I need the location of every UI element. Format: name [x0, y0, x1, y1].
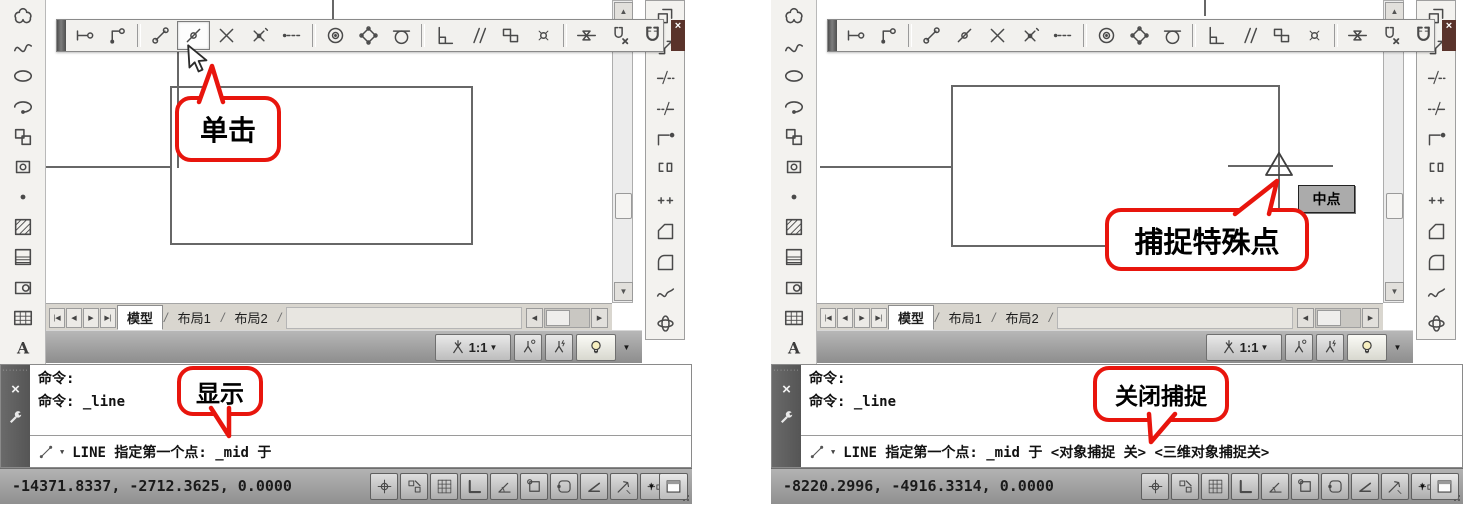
- cad-window-right: 中点 × ▲ ▼ |◀ ◀ ▶ ▶| 模型 / 布局1 / 布局2 / ◀ ▶ …: [771, 0, 1463, 505]
- rectangle-left: [170, 86, 172, 245]
- snap-to-nearest-button[interactable]: [1341, 21, 1374, 50]
- lengthen-icon: [655, 129, 676, 150]
- snap-to-endpoint-icon: [150, 25, 171, 46]
- toolbar-close-button[interactable]: ×: [671, 20, 685, 51]
- snap-to-apparent-intersection-icon: [249, 25, 270, 46]
- multiline-text-button[interactable]: [779, 334, 809, 362]
- join-button[interactable]: [1422, 156, 1450, 183]
- snap-to-node-icon: [1304, 25, 1325, 46]
- snap-to-center-button[interactable]: [319, 21, 352, 50]
- annotation-scale-button[interactable]: 1:1 ▼: [435, 334, 511, 361]
- line-tool-icon: [38, 444, 54, 460]
- first-tab-button[interactable]: |◀: [49, 308, 65, 328]
- callout-close-snap-label: 关闭捕捉: [1115, 377, 1207, 411]
- fillet-button[interactable]: [651, 249, 679, 276]
- callout-close-snap-tail: [1125, 412, 1185, 446]
- blend-curves-button[interactable]: [651, 279, 679, 306]
- snap-to-quadrant-button[interactable]: [352, 21, 385, 50]
- table-icon: [12, 307, 34, 329]
- snap-to-insertion-icon: [500, 25, 521, 46]
- temporary-track-point-icon: [74, 25, 95, 46]
- point-button[interactable]: [779, 183, 809, 211]
- snap-to-tangent-button[interactable]: [1156, 21, 1189, 50]
- object-snap-icon: [525, 477, 544, 496]
- callout-click-label: 单击: [200, 109, 256, 149]
- command-prompt-text: LINE 指定第一个点: _mid 于: [72, 442, 271, 462]
- resize-grip[interactable]: [679, 491, 689, 501]
- hscroll-left-button[interactable]: ◀: [526, 308, 543, 328]
- recent-commands-caret-icon[interactable]: ▼: [831, 448, 835, 456]
- toolbar-separator: [563, 24, 567, 47]
- callout-click: 单击: [175, 96, 281, 162]
- annotation-scale-icon: [449, 338, 467, 356]
- free-orbit-button[interactable]: [651, 310, 679, 337]
- region-button[interactable]: [779, 274, 809, 302]
- object-snap-tracking-button[interactable]: [1321, 473, 1349, 500]
- status-bar: -14371.8337, -2712.3625, 0.0000 ▼: [0, 468, 692, 504]
- dynamic-input-icon: [615, 477, 634, 496]
- point-button[interactable]: [8, 183, 38, 211]
- snap-from-icon: [107, 25, 128, 46]
- snap-to-perpendicular-button[interactable]: [428, 21, 461, 50]
- multiline-text-icon: [12, 337, 34, 359]
- snap-to-extension-icon: [1053, 25, 1074, 46]
- snap-to-apparent-intersection-icon: [1020, 25, 1041, 46]
- break-at-point-icon: [1426, 67, 1447, 88]
- status-bar: -8220.2996, -4916.3314, 0.0000 ▼: [771, 468, 1463, 504]
- point-icon: [783, 186, 805, 208]
- horizontal-scrollbar[interactable]: [544, 308, 590, 328]
- command-grip[interactable]: ········: [773, 369, 800, 373]
- object-snap-button[interactable]: [520, 473, 548, 500]
- hatch-button[interactable]: [8, 213, 38, 241]
- break-icon: [1426, 98, 1447, 119]
- command-window-sidebar: ········ ×: [1, 365, 30, 467]
- lightbulb-icon: [587, 338, 605, 356]
- free-orbit-icon: [1426, 313, 1447, 334]
- region-button[interactable]: [8, 274, 38, 302]
- lengthen-button[interactable]: [651, 126, 679, 153]
- snap-to-extension-button[interactable]: [1047, 21, 1080, 50]
- hscroll-right-button[interactable]: ▶: [591, 308, 608, 328]
- annotation-visibility-icon: [1290, 338, 1308, 356]
- snap-from-icon: [878, 25, 899, 46]
- tab-strip-space: [286, 307, 522, 329]
- hscroll-right-button[interactable]: ▶: [1362, 308, 1379, 328]
- command-history[interactable]: 命令: 命令: _line ▼ LINE 指定第一个点: _mid 于: [30, 365, 691, 467]
- osnap-settings-icon: [1413, 25, 1434, 46]
- ortho-mode-button[interactable]: [1231, 473, 1259, 500]
- hatch-button[interactable]: [779, 213, 809, 241]
- annotation-menu-button[interactable]: ▼: [1390, 335, 1405, 360]
- gradient-button[interactable]: [8, 243, 38, 271]
- annotation-visibility-button[interactable]: [1285, 334, 1313, 361]
- hscroll-thumb[interactable]: [1317, 310, 1341, 326]
- snap-to-apparent-intersection-button[interactable]: [243, 21, 276, 50]
- dynamic-ucs-icon: [585, 477, 604, 496]
- snap-mode-icon: [405, 477, 424, 496]
- snap-to-insertion-icon: [1271, 25, 1292, 46]
- toolbar-drag-handle[interactable]: [57, 20, 66, 51]
- tab-layout1[interactable]: 布局1: [169, 306, 220, 329]
- snap-to-none-icon: [1380, 25, 1401, 46]
- snap-to-quadrant-icon: [358, 25, 379, 46]
- polar-tracking-icon: [495, 477, 514, 496]
- snap-mode-icon: [1176, 477, 1195, 496]
- annotation-visibility-icon: [519, 338, 537, 356]
- hscroll-left-button[interactable]: ◀: [1297, 308, 1314, 328]
- snap-from-button[interactable]: [872, 21, 905, 50]
- insert-block-button[interactable]: [779, 123, 809, 151]
- annotation-lightbulb-button[interactable]: [576, 334, 616, 361]
- snap-to-node-button[interactable]: [1298, 21, 1331, 50]
- annotation-visibility-button[interactable]: [514, 334, 542, 361]
- snap-to-perpendicular-icon: [434, 25, 455, 46]
- last-tab-button[interactable]: ▶|: [100, 308, 116, 328]
- midpoint-marker-icon: [1263, 150, 1295, 178]
- stretch-icon: [1426, 190, 1447, 211]
- region-icon: [783, 277, 805, 299]
- next-tab-button[interactable]: ▶: [83, 308, 99, 328]
- snap-to-intersection-icon: [987, 25, 1008, 46]
- tab-layout2[interactable]: 布局2: [226, 306, 277, 329]
- snap-to-nearest-icon: [576, 25, 597, 46]
- tab-model[interactable]: 模型: [117, 305, 163, 330]
- ellipse-button[interactable]: [779, 62, 809, 90]
- stretch-button[interactable]: [1422, 187, 1450, 214]
- line-stub: [332, 0, 334, 19]
- status-toggles: [370, 473, 668, 500]
- point-icon: [12, 186, 34, 208]
- blend-curves-icon: [655, 282, 676, 303]
- ellipse-icon: [783, 65, 805, 87]
- revision-cloud-button[interactable]: [8, 2, 38, 30]
- spline-button[interactable]: [779, 32, 809, 60]
- snap-to-tangent-button[interactable]: [385, 21, 418, 50]
- snap-to-endpoint-icon: [921, 25, 942, 46]
- toolbar-separator: [312, 24, 316, 47]
- fillet-button[interactable]: [1422, 249, 1450, 276]
- grid-display-icon: [1206, 477, 1225, 496]
- scroll-down-button[interactable]: ▼: [614, 282, 633, 301]
- break-at-point-icon: [655, 67, 676, 88]
- command-prompt[interactable]: ▼ LINE 指定第一个点: _mid 于: [30, 435, 691, 467]
- fillet-icon: [655, 252, 676, 273]
- toolbar-separator: [137, 24, 141, 47]
- callout-display: 显示: [177, 366, 263, 416]
- spline-button[interactable]: [8, 32, 38, 60]
- temporary-track-point-icon: [845, 25, 866, 46]
- snap-to-quadrant-button[interactable]: [1123, 21, 1156, 50]
- chamfer-icon: [655, 221, 676, 242]
- auto-annotation-scale-icon: [550, 338, 568, 356]
- snap-to-node-button[interactable]: [527, 21, 560, 50]
- dynamic-input-icon: [1386, 477, 1405, 496]
- revision-cloud-button[interactable]: [779, 2, 809, 30]
- annotation-lightbulb-button[interactable]: [1347, 334, 1387, 361]
- status-menu-caret[interactable]: ▼: [1416, 474, 1429, 499]
- spline-icon: [12, 35, 34, 57]
- callout-snap-special-label: 捕捉特殊点: [1134, 219, 1279, 261]
- snap-mode-button[interactable]: [1171, 473, 1199, 500]
- make-block-button[interactable]: [779, 153, 809, 181]
- next-tab-button[interactable]: ▶: [854, 308, 870, 328]
- elliptical-arc-button[interactable]: [779, 93, 809, 121]
- elliptical-arc-button[interactable]: [8, 93, 38, 121]
- infer-constraints-icon: [1146, 477, 1165, 496]
- insert-block-icon: [783, 126, 805, 148]
- region-icon: [12, 277, 34, 299]
- dynamic-ucs-icon: [1356, 477, 1375, 496]
- break-at-point-button[interactable]: [651, 64, 679, 91]
- snap-to-parallel-icon: [467, 25, 488, 46]
- rectangle-top: [951, 85, 1280, 87]
- break-button[interactable]: [651, 95, 679, 122]
- snap-to-extension-icon: [282, 25, 303, 46]
- annotation-status-strip: 1:1 ▼ ▼: [46, 330, 642, 363]
- command-tools-icon[interactable]: [778, 408, 796, 426]
- last-tab-button[interactable]: ▶|: [871, 308, 887, 328]
- polar-tracking-icon: [1266, 477, 1285, 496]
- osnap-settings-button[interactable]: [1407, 21, 1440, 50]
- gradient-button[interactable]: [779, 243, 809, 271]
- ortho-mode-button[interactable]: [460, 473, 488, 500]
- mouse-cursor-icon: [184, 44, 208, 78]
- command-tools-icon[interactable]: [7, 408, 25, 426]
- ortho-mode-icon: [1236, 477, 1255, 496]
- object-snap-tracking-button[interactable]: [550, 473, 578, 500]
- gradient-icon: [12, 246, 34, 268]
- toolbar-separator: [1083, 24, 1087, 47]
- stretch-icon: [655, 190, 676, 211]
- snap-to-endpoint-button[interactable]: [144, 21, 177, 50]
- command-prompt-text: LINE 指定第一个点: _mid 于 <对象捕捉 关> <三维对象捕捉关>: [843, 442, 1269, 462]
- dynamic-ucs-button[interactable]: [580, 473, 608, 500]
- dynamic-input-button[interactable]: [610, 473, 638, 500]
- lengthen-icon: [1426, 129, 1447, 150]
- insert-block-button[interactable]: [8, 123, 38, 151]
- chamfer-button[interactable]: [651, 218, 679, 245]
- cad-window-left: × ▲ ▼ |◀ ◀ ▶ ▶| 模型 / 布局1 / 布局2 / ◀ ▶ 1:1…: [0, 0, 692, 505]
- rectangle-left: [951, 85, 953, 247]
- snap-tooltip: 中点: [1298, 185, 1355, 213]
- osnap-settings-button[interactable]: [636, 21, 669, 50]
- blend-curves-button[interactable]: [1422, 279, 1450, 306]
- auto-annotation-scale-icon: [1321, 338, 1339, 356]
- snap-to-insertion-button[interactable]: [1265, 21, 1298, 50]
- command-close-button[interactable]: ×: [11, 381, 20, 398]
- snap-to-parallel-button[interactable]: [461, 21, 494, 50]
- make-block-icon: [12, 156, 34, 178]
- snap-to-parallel-button[interactable]: [1232, 21, 1265, 50]
- hatch-icon: [12, 216, 34, 238]
- annotation-menu-button[interactable]: ▼: [619, 335, 634, 360]
- snap-to-extension-button[interactable]: [276, 21, 309, 50]
- snap-to-apparent-intersection-button[interactable]: [1014, 21, 1047, 50]
- stretch-button[interactable]: [651, 187, 679, 214]
- snap-to-nearest-button[interactable]: [570, 21, 603, 50]
- join-button[interactable]: [651, 156, 679, 183]
- snap-to-none-button[interactable]: [1374, 21, 1407, 50]
- recent-commands-caret-icon[interactable]: ▼: [60, 448, 64, 456]
- coordinates-readout: -8220.2996, -4916.3314, 0.0000: [783, 477, 1054, 495]
- line-stub: [1204, 0, 1206, 16]
- coordinates-readout: -14371.8337, -2712.3625, 0.0000: [12, 477, 292, 495]
- snap-to-parallel-icon: [1238, 25, 1259, 46]
- tab-layout2[interactable]: 布局2: [997, 306, 1048, 329]
- tab-navigation: |◀ ◀ ▶ ▶|: [820, 308, 888, 328]
- toolbar-drag-handle[interactable]: [828, 20, 837, 51]
- hscroll-thumb[interactable]: [546, 310, 570, 326]
- annotation-scale-value: 1:1: [1240, 340, 1259, 355]
- infer-constraints-button[interactable]: [1141, 473, 1169, 500]
- prev-tab-button[interactable]: ◀: [66, 308, 82, 328]
- command-window-sidebar: ········ ×: [772, 365, 801, 467]
- callout-display-tail: [203, 406, 243, 442]
- horizontal-scrollbar[interactable]: [1315, 308, 1361, 328]
- revision-cloud-icon: [783, 5, 805, 27]
- tab-layout1[interactable]: 布局1: [940, 306, 991, 329]
- draw-toolbar: [771, 0, 817, 364]
- grid-display-button[interactable]: [1201, 473, 1229, 500]
- snap-to-intersection-button[interactable]: [981, 21, 1014, 50]
- make-block-button[interactable]: [8, 153, 38, 181]
- layout-tab-bar: |◀ ◀ ▶ ▶| 模型 / 布局1 / 布局2 / ◀ ▶: [46, 303, 612, 331]
- tab-navigation: |◀ ◀ ▶ ▶|: [49, 308, 117, 328]
- draw-toolbar: [0, 0, 46, 364]
- snap-to-nearest-icon: [1347, 25, 1368, 46]
- snap-to-perpendicular-icon: [1205, 25, 1226, 46]
- ortho-mode-icon: [465, 477, 484, 496]
- lengthen-button[interactable]: [1422, 126, 1450, 153]
- prev-tab-button[interactable]: ◀: [837, 308, 853, 328]
- spline-icon: [783, 35, 805, 57]
- object-snap-icon: [1296, 477, 1315, 496]
- toolbar-separator: [908, 24, 912, 47]
- blend-curves-icon: [1426, 282, 1447, 303]
- chamfer-button[interactable]: [1422, 218, 1450, 245]
- object-snap-tracking-icon: [555, 477, 574, 496]
- auto-annotation-scale-button[interactable]: [545, 334, 573, 361]
- snap-to-none-button[interactable]: [603, 21, 636, 50]
- temporary-track-point-button[interactable]: [839, 21, 872, 50]
- snap-to-insertion-button[interactable]: [494, 21, 527, 50]
- table-button[interactable]: [779, 304, 809, 332]
- multiline-text-icon: [783, 337, 805, 359]
- toolbar-close-button[interactable]: ×: [1442, 20, 1456, 51]
- resize-grip[interactable]: [1450, 491, 1460, 501]
- command-line: 命令: _line: [30, 388, 691, 411]
- table-icon: [783, 307, 805, 329]
- command-grip[interactable]: ········: [2, 369, 29, 373]
- snap-to-endpoint-button[interactable]: [915, 21, 948, 50]
- ellipse-button[interactable]: [8, 62, 38, 90]
- polar-tracking-button[interactable]: [1261, 473, 1289, 500]
- object-snap-toolbar: ×: [827, 19, 1435, 52]
- grid-display-button[interactable]: [430, 473, 458, 500]
- temporary-track-point-button[interactable]: [68, 21, 101, 50]
- hatch-icon: [783, 216, 805, 238]
- lightbulb-icon: [1358, 338, 1376, 356]
- close-icon: ×: [675, 20, 681, 33]
- caret-down-icon: ▼: [1260, 343, 1268, 352]
- snap-to-midpoint-icon: [954, 25, 975, 46]
- annotation-scale-value: 1:1: [469, 340, 488, 355]
- ellipse-icon: [12, 65, 34, 87]
- scroll-down-button[interactable]: ▼: [1385, 282, 1404, 301]
- free-orbit-button[interactable]: [1422, 310, 1450, 337]
- snap-to-node-icon: [533, 25, 554, 46]
- command-close-button[interactable]: ×: [782, 381, 791, 398]
- snap-to-none-icon: [609, 25, 630, 46]
- infer-constraints-button[interactable]: [370, 473, 398, 500]
- join-icon: [655, 159, 676, 180]
- snap-to-perpendicular-button[interactable]: [1199, 21, 1232, 50]
- grid-display-icon: [435, 477, 454, 496]
- callout-snap-special-tail: [1227, 176, 1297, 216]
- free-orbit-icon: [655, 313, 676, 334]
- scrollbar-thumb[interactable]: [615, 193, 632, 219]
- elliptical-arc-icon: [783, 96, 805, 118]
- auto-annotation-scale-button[interactable]: [1316, 334, 1344, 361]
- snap-to-intersection-icon: [216, 25, 237, 46]
- snap-to-center-button[interactable]: [1090, 21, 1123, 50]
- scrollbar-thumb[interactable]: [1386, 193, 1403, 219]
- callout-close-snap: 关闭捕捉: [1093, 366, 1229, 422]
- command-line: 命令:: [30, 365, 691, 388]
- snap-mode-button[interactable]: [400, 473, 428, 500]
- polar-tracking-button[interactable]: [490, 473, 518, 500]
- line-tool-icon: [809, 444, 825, 460]
- first-tab-button[interactable]: |◀: [820, 308, 836, 328]
- callout-snap-special-point: 捕捉特殊点: [1105, 208, 1309, 271]
- snap-to-midpoint-button[interactable]: [948, 21, 981, 50]
- layout-tab-bar: |◀ ◀ ▶ ▶| 模型 / 布局1 / 布局2 / ◀ ▶: [817, 303, 1383, 331]
- annotation-scale-button[interactable]: 1:1 ▼: [1206, 334, 1282, 361]
- toolbar-separator: [1334, 24, 1338, 47]
- make-block-icon: [783, 156, 805, 178]
- infer-constraints-icon: [375, 477, 394, 496]
- tab-strip-space: [1057, 307, 1293, 329]
- insert-block-icon: [12, 126, 34, 148]
- fillet-icon: [1426, 252, 1447, 273]
- osnap-settings-icon: [642, 25, 663, 46]
- tab-model[interactable]: 模型: [888, 305, 934, 330]
- multiline-text-button[interactable]: [8, 334, 38, 362]
- snap-to-quadrant-icon: [1129, 25, 1150, 46]
- snap-to-center-icon: [325, 25, 346, 46]
- toolbar-separator: [421, 24, 425, 47]
- gradient-icon: [783, 246, 805, 268]
- annotation-status-strip: 1:1 ▼ ▼: [817, 330, 1413, 363]
- status-menu-caret[interactable]: ▼: [645, 474, 658, 499]
- snap-to-center-icon: [1096, 25, 1117, 46]
- table-button[interactable]: [8, 304, 38, 332]
- object-snap-toolbar: ×: [56, 19, 664, 52]
- break-at-point-button[interactable]: [1422, 64, 1450, 91]
- dynamic-ucs-button[interactable]: [1351, 473, 1379, 500]
- snap-to-intersection-button[interactable]: [210, 21, 243, 50]
- break-button[interactable]: [1422, 95, 1450, 122]
- close-icon: ×: [1446, 20, 1452, 33]
- snap-from-button[interactable]: [101, 21, 134, 50]
- horizontal-line: [820, 166, 951, 168]
- status-toggles: [1141, 473, 1439, 500]
- caret-down-icon: ▼: [489, 343, 497, 352]
- dynamic-input-button[interactable]: [1381, 473, 1409, 500]
- object-snap-button[interactable]: [1291, 473, 1319, 500]
- command-window: ········ × 命令: 命令: _line ▼ LINE 指定第一个点: …: [0, 364, 692, 468]
